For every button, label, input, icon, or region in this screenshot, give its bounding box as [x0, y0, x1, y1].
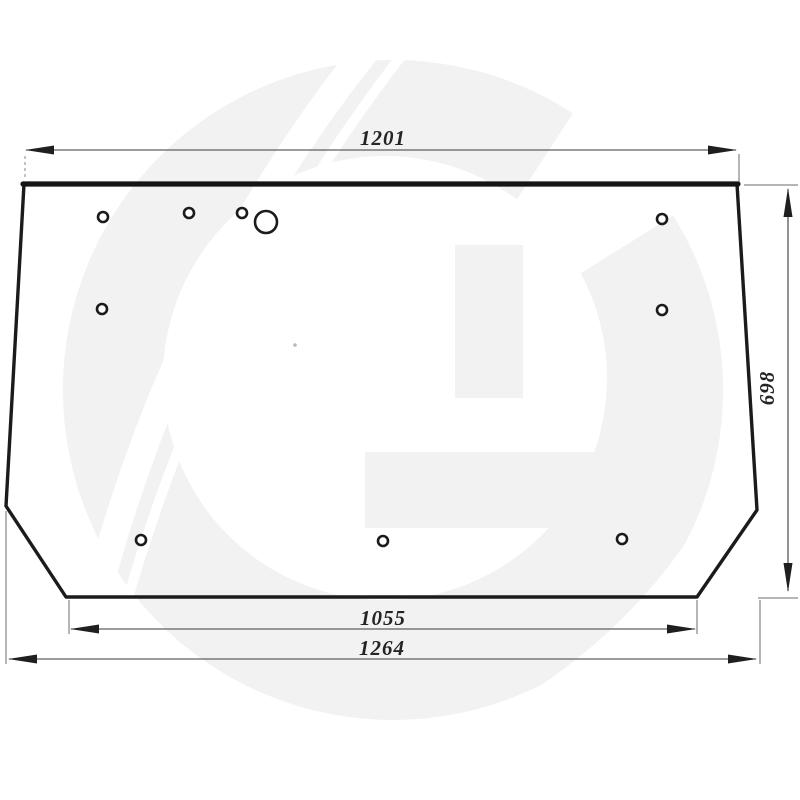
glass-hole — [97, 304, 107, 314]
watermark-crossbar — [365, 452, 620, 528]
dim-label-bottom-overall-width: 1264 — [359, 636, 405, 660]
arrow-right-icon — [728, 655, 757, 664]
glass-hole — [98, 212, 108, 222]
technical-drawing-page: 1201 698 1055 1264 — [0, 0, 800, 800]
glass-hole — [657, 214, 667, 224]
glass-hole — [617, 534, 627, 544]
dim-label-top-width: 1201 — [360, 126, 406, 150]
glass-hole — [136, 535, 146, 545]
glass-pane-diagram: 1201 698 1055 1264 — [0, 0, 800, 800]
glass-hole — [378, 536, 388, 546]
glass-hole — [657, 305, 667, 315]
dim-label-bottom-inner-width: 1055 — [360, 606, 406, 630]
arrow-left-icon — [8, 655, 37, 664]
scan-speck — [293, 343, 297, 347]
arrow-right-icon — [667, 625, 696, 634]
arrow-up-icon — [784, 188, 793, 217]
dim-label-side-height: 698 — [755, 371, 779, 406]
scan-speck-group — [293, 343, 297, 347]
arrow-left-icon — [25, 146, 54, 155]
glass-hole — [237, 208, 247, 218]
glass-hole — [184, 208, 194, 218]
dim-side-height: 698 — [744, 185, 798, 598]
arrow-down-icon — [784, 563, 793, 592]
arrow-right-icon — [708, 146, 737, 155]
glass-hole — [255, 211, 277, 233]
watermark-vertical-bar — [455, 245, 523, 398]
